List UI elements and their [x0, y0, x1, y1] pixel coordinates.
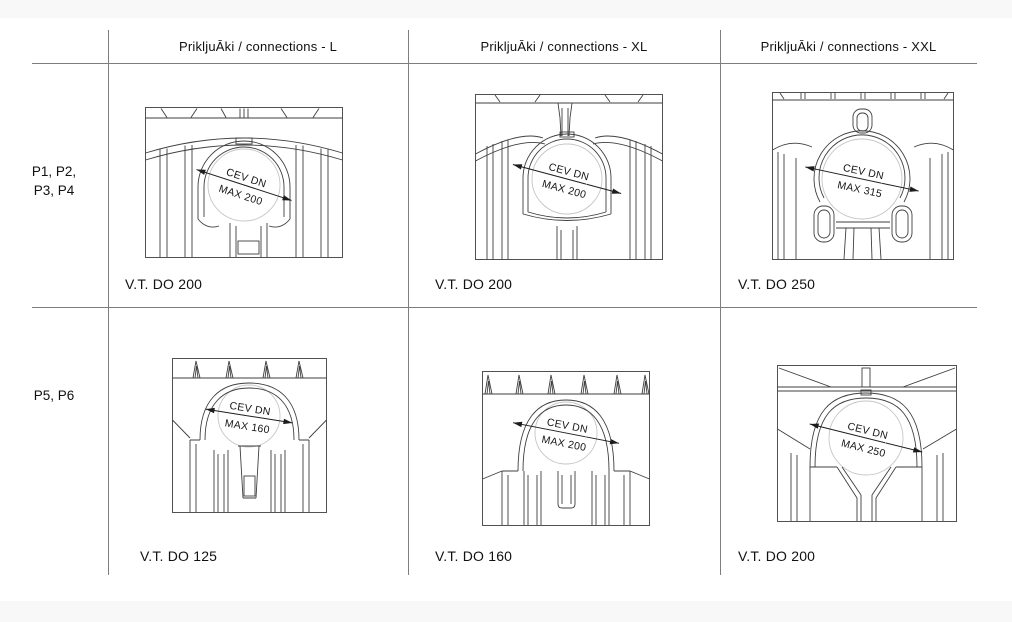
drawing-p1p4-xl: CEV DN MAX 200: [475, 94, 663, 260]
dimension-arrow: CEV DN MAX 200: [510, 410, 622, 460]
dimension-arrow: CEV DN MAX 200: [509, 152, 625, 210]
drawing-p1p4-xxl: CEV DN MAX 315: [772, 92, 954, 260]
cell-caption: V.T. DO 200: [435, 276, 512, 292]
cell-caption: V.T. DO 200: [738, 548, 815, 564]
column-header-xxl: PrikljuĀki / connections - XXL: [720, 36, 977, 58]
dim-label-line1: CEV DN: [229, 400, 272, 418]
cell-caption: V.T. DO 200: [125, 276, 202, 292]
dim-label-line2: MAX 250: [840, 437, 887, 460]
grid-hline-rows: [32, 307, 977, 308]
drawing-p5p6-xxl: CEV DN MAX 250: [777, 365, 957, 522]
row-label-line1: P1, P2,: [0, 162, 108, 181]
grid-vline-3: [720, 30, 721, 575]
row-label-p1-p4: P1, P2, P3, P4: [0, 162, 108, 200]
grid-vline-2: [408, 30, 409, 575]
cell-caption: V.T. DO 250: [738, 276, 815, 292]
drawing-p5p6-xl: CEV DN MAX 200: [482, 371, 650, 526]
row-label-line2: P3, P4: [0, 181, 108, 200]
grid-vline-1: [108, 30, 109, 575]
dim-label-line2: MAX 160: [224, 417, 271, 436]
bottom-band: [0, 601, 1012, 622]
cell-caption: V.T. DO 125: [140, 548, 217, 564]
column-header-l: PrikljuĀki / connections - L: [108, 36, 408, 58]
catalog-page: PrikljuĀki / connections - L PrikljuĀki …: [0, 0, 1012, 622]
drawing-p5p6-l: CEV DN MAX 160: [172, 358, 327, 513]
row-label-p5-p6: P5, P6: [0, 386, 108, 405]
row-label-line1: P5, P6: [0, 386, 108, 405]
grid-hline-header: [32, 63, 977, 64]
drawing-p1p4-l: CEV DN MAX 200: [145, 107, 343, 258]
column-header-xl: PrikljuĀki / connections - XL: [408, 36, 720, 58]
top-band: [0, 0, 1012, 18]
dimension-arrow: CEV DN MAX 160: [203, 396, 295, 439]
dim-label-line2: MAX 200: [541, 434, 588, 454]
dimension-arrow: CEV DN MAX 315: [802, 154, 922, 207]
cell-caption: V.T. DO 160: [435, 548, 512, 564]
